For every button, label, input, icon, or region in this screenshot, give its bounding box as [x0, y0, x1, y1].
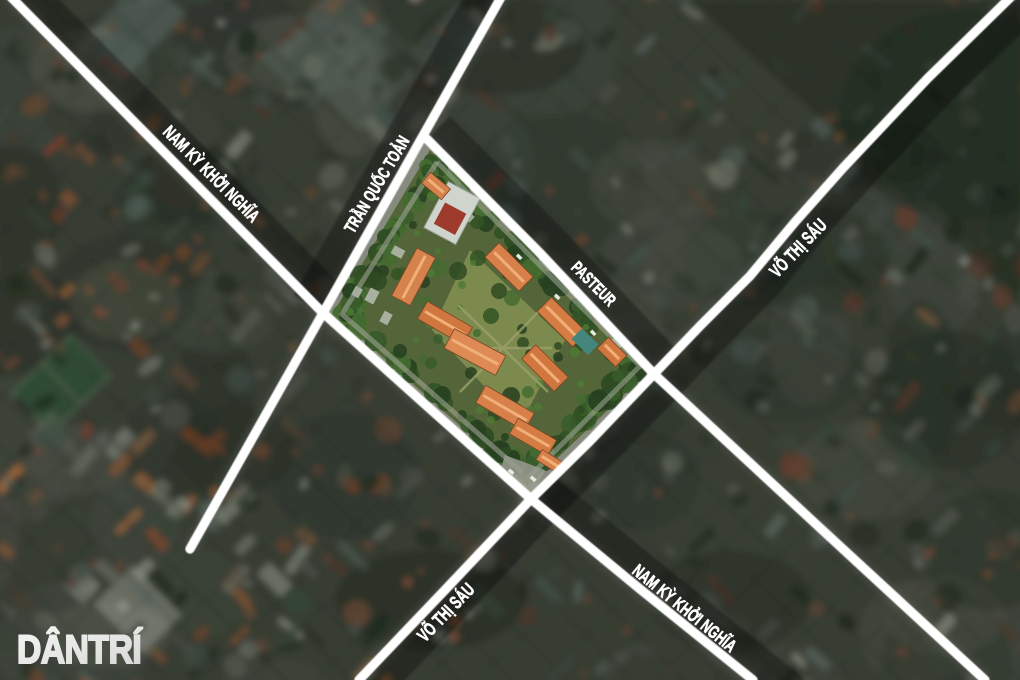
svg-text:DÂNTRÍ: DÂNTRÍ [17, 626, 143, 671]
